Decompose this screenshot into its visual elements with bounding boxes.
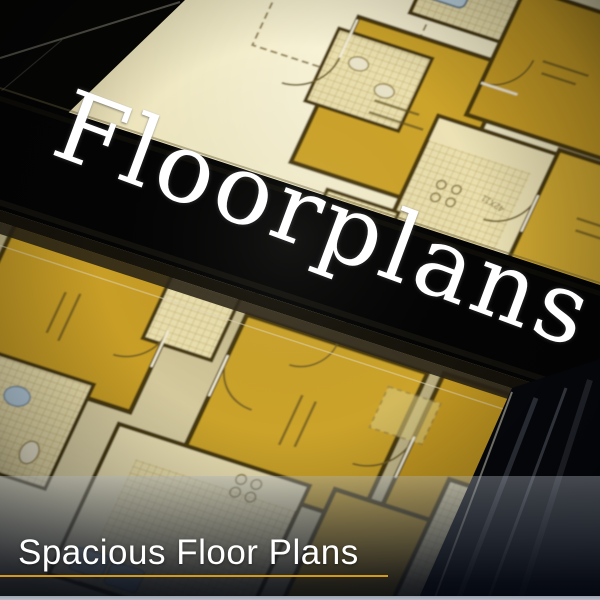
bottom-strip xyxy=(0,596,600,600)
caption-bar: Spacious Floor Plans xyxy=(0,476,600,600)
caption-text: Spacious Floor Plans xyxy=(18,534,359,573)
caption-accent-rule xyxy=(0,575,388,577)
hero-banner: 42X11 xyxy=(0,0,600,600)
